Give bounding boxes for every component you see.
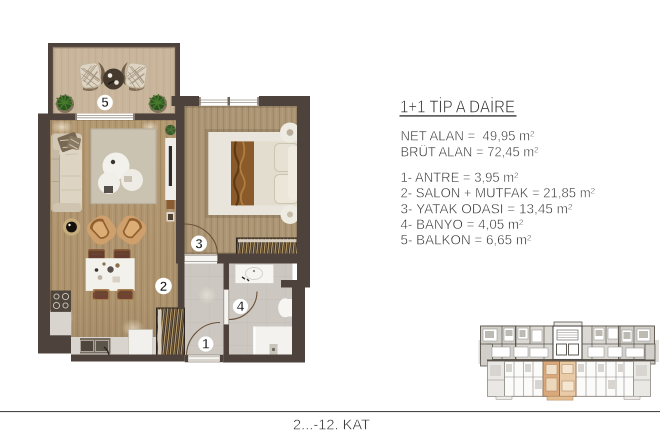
svg-text:BRÜT ALAN = 72,45 m²: BRÜT ALAN = 72,45 m² — [401, 142, 539, 159]
svg-text:4: 4 — [237, 299, 245, 314]
svg-text:5: 5 — [101, 95, 109, 110]
svg-text:1: 1 — [202, 337, 210, 352]
svg-text:NET ALAN = 49,95 m²: NET ALAN = 49,95 m² — [401, 129, 535, 144]
svg-text:4- BANYO = 4,05 m²: 4- BANYO = 4,05 m² — [401, 217, 524, 232]
svg-text:5- BALKON = 6,65 m²: 5- BALKON = 6,65 m² — [401, 232, 532, 247]
svg-text:3: 3 — [195, 236, 203, 251]
svg-text:1+1 TİP A DAİRE: 1+1 TİP A DAİRE — [400, 97, 515, 117]
svg-text:2...-12. KAT: 2...-12. KAT — [293, 417, 370, 434]
svg-text:2: 2 — [160, 279, 168, 294]
svg-text:2- SALON + MUTFAK = 21,85 m²: 2- SALON + MUTFAK = 21,85 m² — [401, 186, 596, 201]
svg-text:1- ANTRE = 3,95 m²: 1- ANTRE = 3,95 m² — [401, 170, 519, 185]
svg-text:3- YATAK ODASI = 13,45 m²: 3- YATAK ODASI = 13,45 m² — [401, 201, 573, 216]
